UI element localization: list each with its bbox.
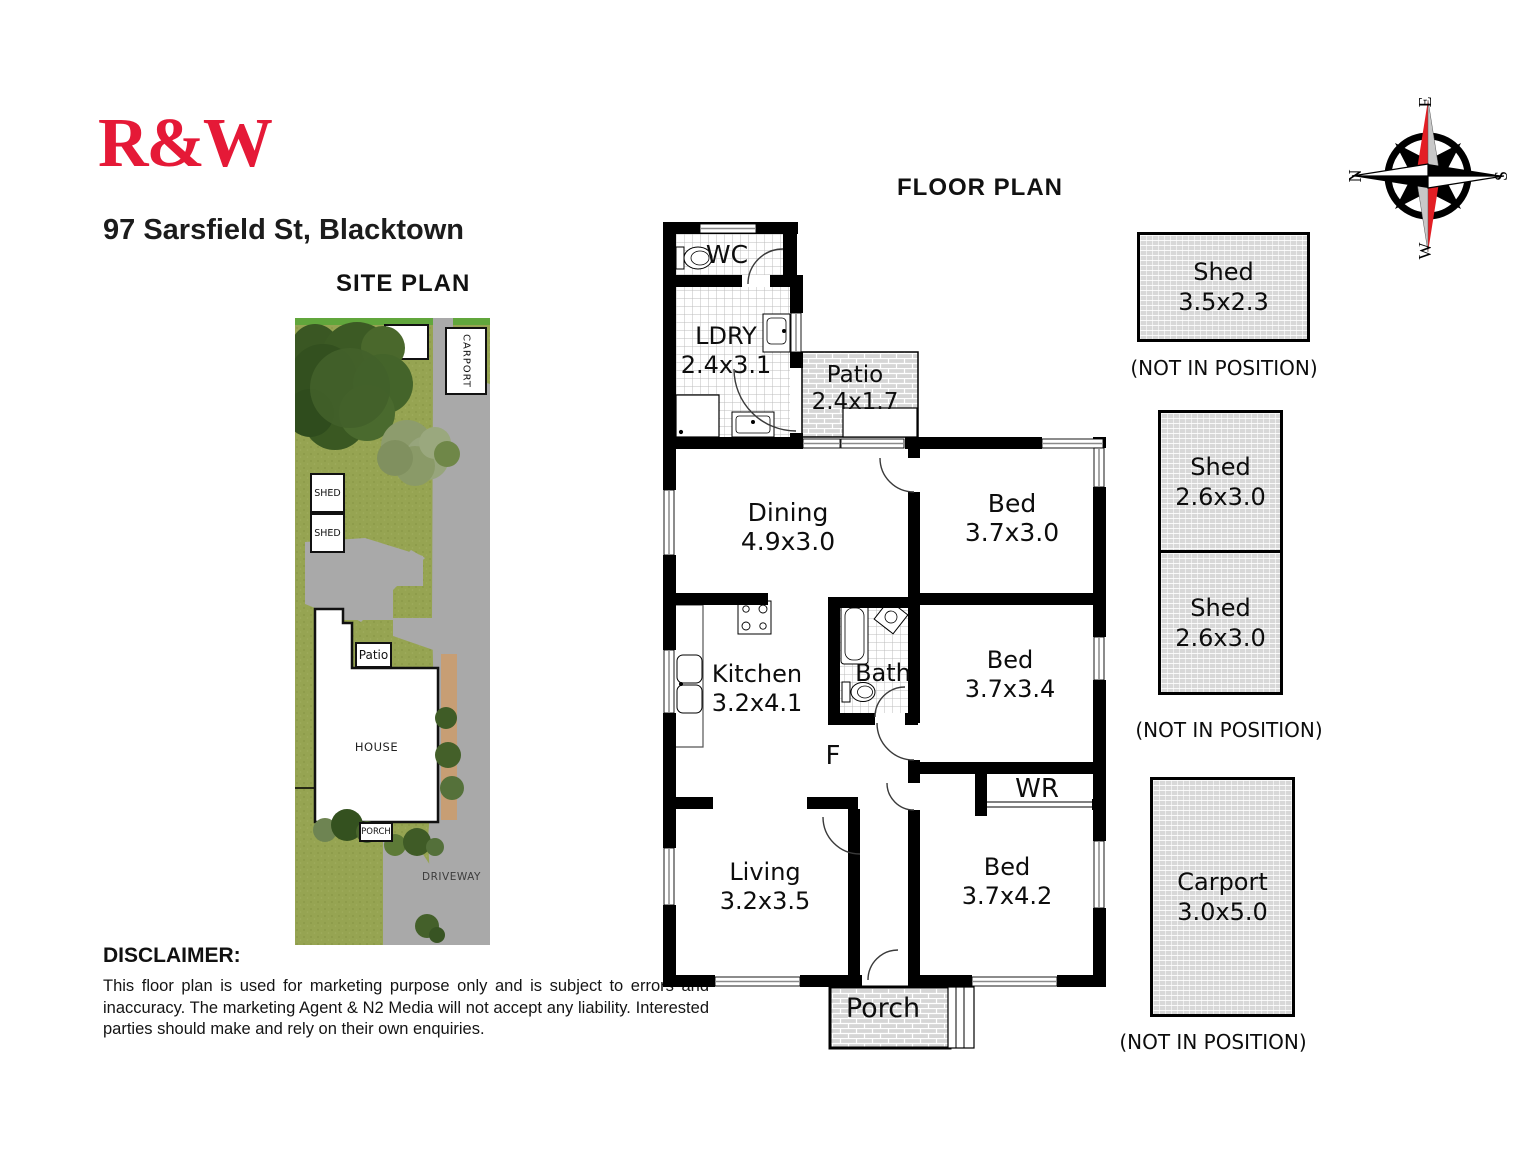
room-label-porch: Porch <box>823 994 943 1023</box>
siteplan-driveway-label: DRIVEWAY <box>413 871 490 883</box>
room-label-living: Living3.2x3.5 <box>675 858 855 916</box>
siteplan-porch-box: PORCH <box>359 822 393 842</box>
svg-text:S: S <box>1491 171 1508 181</box>
siteplan-patio-box: Patio <box>355 642 392 668</box>
room-label-bath: Bath <box>838 659 928 688</box>
room-label-fridge: F <box>813 742 853 771</box>
room-label-wc: WC <box>687 240 767 269</box>
room-label-bed1: Bed3.7x3.0 <box>922 489 1102 547</box>
page: R&W 97 Sarsfield St, Blacktown SITE PLAN… <box>0 0 1534 1150</box>
ldry-washer <box>676 395 719 437</box>
lawn-strip <box>295 318 490 325</box>
disclaimer-body: This floor plan is used for marketing pu… <box>103 976 709 1041</box>
site-plan-svg <box>295 318 490 945</box>
room-label-bed3: Bed3.7x4.2 <box>917 853 1097 911</box>
sheds-note: (NOT IN POSITION) <box>1135 718 1322 742</box>
disclaimer: DISCLAIMER: This floor plan is used for … <box>103 944 709 1041</box>
kitchen-stove <box>738 601 771 634</box>
site-plan-title: SITE PLAN <box>336 270 470 298</box>
carport-box: Carport 3.0x5.0 <box>1150 777 1295 1017</box>
svg-text:N: N <box>1348 170 1365 183</box>
site-plan-drawing: CARPORT SHED SHED Patio HOUSE PORCH DRIV… <box>295 318 490 945</box>
svg-text:E: E <box>1415 97 1435 108</box>
shed1-note: (NOT IN POSITION) <box>1130 356 1317 380</box>
bath-tub <box>841 601 868 664</box>
rw-logo: R&W <box>98 104 271 184</box>
siteplan-shed-lower-box: SHED <box>310 513 345 553</box>
siteplan-shed-upper-box: SHED <box>310 473 345 513</box>
shed3-box: Shed 2.6x3.0 <box>1158 550 1283 695</box>
compass-main-points <box>1352 100 1504 252</box>
disclaimer-heading: DISCLAIMER: <box>103 944 709 968</box>
room-label-kitchen: Kitchen3.2x4.1 <box>667 660 847 718</box>
room-label-ldry: LDRY2.4x3.1 <box>663 322 789 380</box>
room-label-bed2: Bed3.7x3.4 <box>920 646 1100 704</box>
room-label-dining: Dining4.9x3.0 <box>688 498 888 556</box>
carport-note: (NOT IN POSITION) <box>1119 1030 1306 1054</box>
shed1-box: Shed 3.5x2.3 <box>1137 232 1310 342</box>
compass-rose-icon: E S W N <box>1348 90 1508 260</box>
siteplan-house-label: HOUSE <box>315 740 438 754</box>
property-address: 97 Sarsfield St, Blacktown <box>103 214 464 247</box>
floor-plan-title: FLOOR PLAN <box>897 174 1063 202</box>
floor-plan-drawing: WC LDRY2.4x3.1 Patio2.4x1.7 Dining4.9x3.… <box>660 218 1110 1053</box>
svg-text:W: W <box>1415 243 1435 260</box>
porch-steps <box>948 987 974 1048</box>
room-label-patio: Patio2.4x1.7 <box>802 362 908 416</box>
room-label-wr: WR <box>997 775 1077 804</box>
shed2-box: Shed 2.6x3.0 <box>1158 410 1283 553</box>
siteplan-carport-box: CARPORT <box>445 327 487 395</box>
